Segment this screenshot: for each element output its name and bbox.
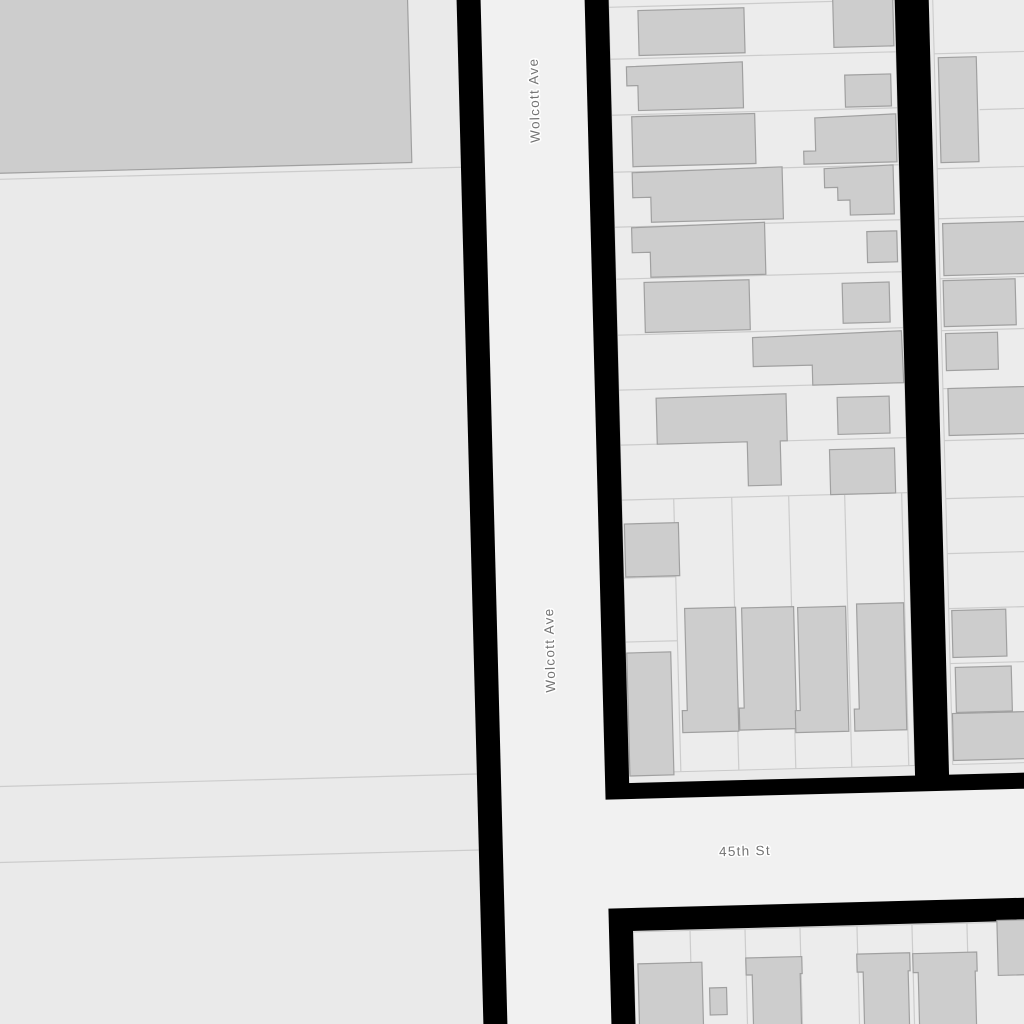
wolcott-ave-label-south: Wolcott Ave xyxy=(541,607,558,692)
building xyxy=(710,988,728,1015)
rowhouse xyxy=(793,606,849,732)
building xyxy=(833,0,894,47)
building xyxy=(829,448,895,495)
building xyxy=(842,282,890,323)
building xyxy=(644,280,750,333)
building xyxy=(624,523,679,577)
building-l xyxy=(632,167,783,223)
building-l xyxy=(626,62,743,111)
building-l xyxy=(632,222,766,277)
building xyxy=(945,332,998,370)
building xyxy=(867,231,898,263)
building-left-large xyxy=(0,0,412,175)
map-canvas[interactable]: Wolcott AveWolcott Ave45th St xyxy=(0,0,1024,1024)
rowhouse xyxy=(852,603,907,731)
building xyxy=(955,666,1012,712)
building xyxy=(845,74,892,107)
building xyxy=(943,221,1024,275)
building xyxy=(632,114,756,167)
45th-st-surface xyxy=(568,787,1024,910)
building xyxy=(943,279,1016,327)
building xyxy=(638,962,704,1024)
building xyxy=(837,396,890,434)
45th-st-label: 45th St xyxy=(719,843,771,859)
building xyxy=(997,919,1024,976)
building xyxy=(952,712,1024,761)
building xyxy=(627,652,674,776)
wolcott-ave-label-north: Wolcott Ave xyxy=(526,58,543,143)
rowhouse xyxy=(680,607,739,732)
rowhouse-t xyxy=(857,953,912,1024)
rowhouse xyxy=(737,607,797,730)
rowhouse-t xyxy=(913,952,979,1024)
building-l xyxy=(803,114,897,164)
building xyxy=(638,8,745,56)
building xyxy=(938,57,979,163)
building xyxy=(952,609,1007,657)
rowhouse-t xyxy=(746,957,804,1024)
map-viewport[interactable]: Wolcott AveWolcott Ave45th St xyxy=(0,0,1024,1024)
building xyxy=(948,386,1024,435)
